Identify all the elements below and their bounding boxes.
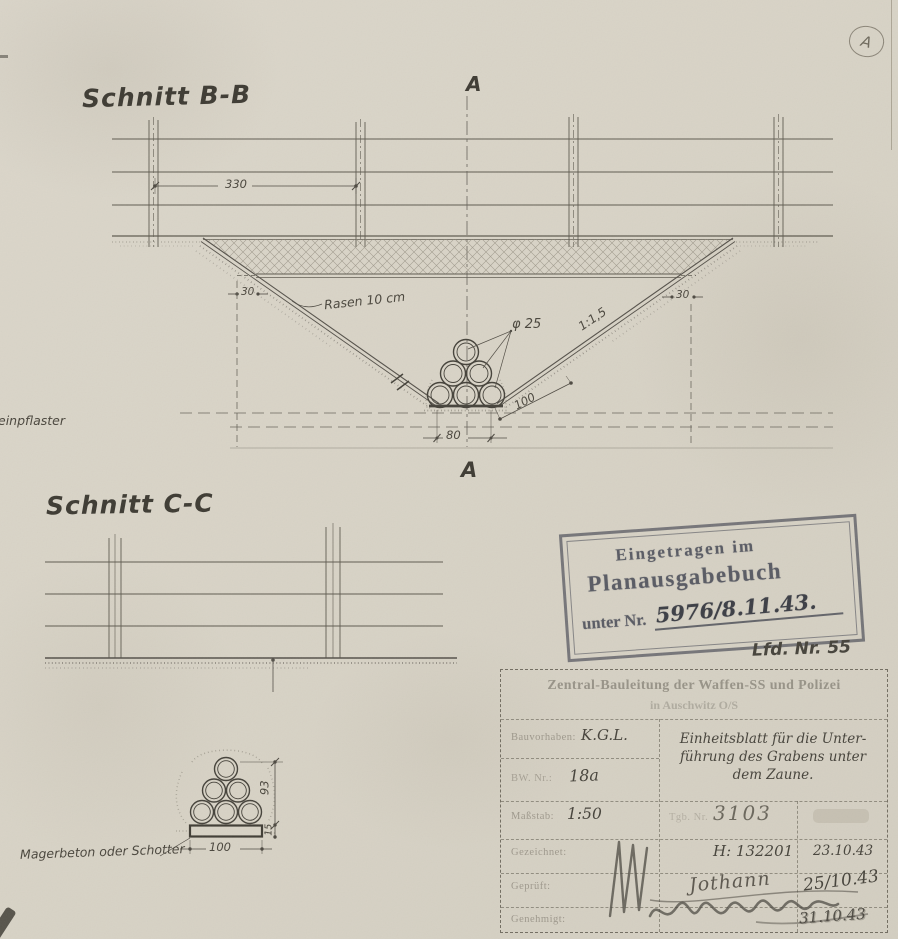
bb-paving-bottom	[237, 274, 696, 278]
bb-pipes	[428, 340, 505, 408]
dim-330-label: 330	[221, 179, 251, 191]
detail-pipes	[191, 758, 262, 824]
serial-note: Lfd. Nr. 55	[752, 639, 852, 659]
bb-dim-330	[151, 178, 360, 194]
geprueft-signature: Jothann	[688, 868, 771, 896]
drawing-sheet: Schnitt B-B A A 330 30 30 Rasen 10 cm 1:…	[0, 0, 898, 939]
pipe-diameter-label: φ 25	[512, 318, 541, 331]
detail-dim-100-label: 100	[209, 842, 231, 854]
genehmigt-date: 31.10.43	[799, 906, 867, 927]
dim-30-right-label: 30	[676, 290, 689, 301]
stamp-line3-label: unter Nr.	[582, 610, 647, 634]
bw-number-label: BW. Nr.:	[511, 773, 552, 784]
bb-construction-lines	[180, 281, 833, 448]
geprueft-date: 25/10.43	[802, 867, 880, 895]
section-bb-title: Schnitt B-B	[82, 82, 252, 111]
detail-base-slab	[190, 826, 262, 837]
genehmigt-label: Genehmigt:	[511, 914, 566, 925]
zeichnung-number-label: Tgb. Nr.	[669, 812, 708, 823]
bw-number-value: 18a	[569, 766, 600, 785]
description-line3: dem Zaune.	[663, 768, 883, 783]
zeichnung-number-value: 3103	[713, 802, 772, 824]
paving-label: einpflaster	[0, 415, 65, 428]
bb-pipe-base	[424, 380, 508, 411]
gezeichnet-label: Gezeichnet:	[511, 847, 567, 858]
bb-rasen-leader	[292, 301, 322, 307]
detail-dim-15-label: 15	[264, 824, 274, 836]
paper-edge-line	[891, 0, 892, 150]
bb-paving-hatch	[203, 239, 733, 274]
geprueft-label: Geprüft:	[511, 881, 551, 892]
cc-fence-posts	[109, 523, 340, 658]
massstab-value: 1:50	[567, 806, 602, 823]
description-line2: führung des Grabens unter	[663, 750, 883, 765]
massstab-label: Maßstab:	[511, 811, 554, 822]
bauvorhaben-value: K.G.L.	[581, 727, 628, 744]
cc-ground	[45, 658, 457, 692]
title-block-header-line2: in Auschwitz O/S	[501, 698, 887, 713]
cut-mark-top: A	[466, 74, 481, 94]
sheet-corner-mark-letter: A	[859, 32, 873, 52]
description-line1: Einheitsblatt für die Unter-	[663, 732, 883, 747]
section-cc-title: Schnitt C-C	[46, 491, 214, 519]
gezeichnet-date: 23.10.43	[813, 844, 873, 859]
bauvorhaben-label: Bauvorhaben:	[511, 732, 576, 743]
dim-30-left-label: 30	[241, 287, 254, 298]
cut-mark-bottom: A	[461, 460, 477, 481]
title-block-header-line1: Zentral-Bauleitung der Waffen-SS und Pol…	[501, 678, 887, 694]
cc-fence-rails	[45, 562, 443, 626]
edge-tick-mark	[0, 55, 8, 58]
dim-80-label: 80	[446, 430, 461, 442]
faint-cell-smudge	[813, 809, 869, 823]
stamp-registry-number: 5976/8.11.43.	[653, 586, 844, 630]
detail-dim-93-label: 93	[260, 780, 272, 795]
gezeichnet-value: H: 132201	[713, 843, 793, 860]
title-block: Zentral-Bauleitung der Waffen-SS und Pol…	[500, 669, 888, 933]
bb-dim-80	[423, 410, 507, 443]
